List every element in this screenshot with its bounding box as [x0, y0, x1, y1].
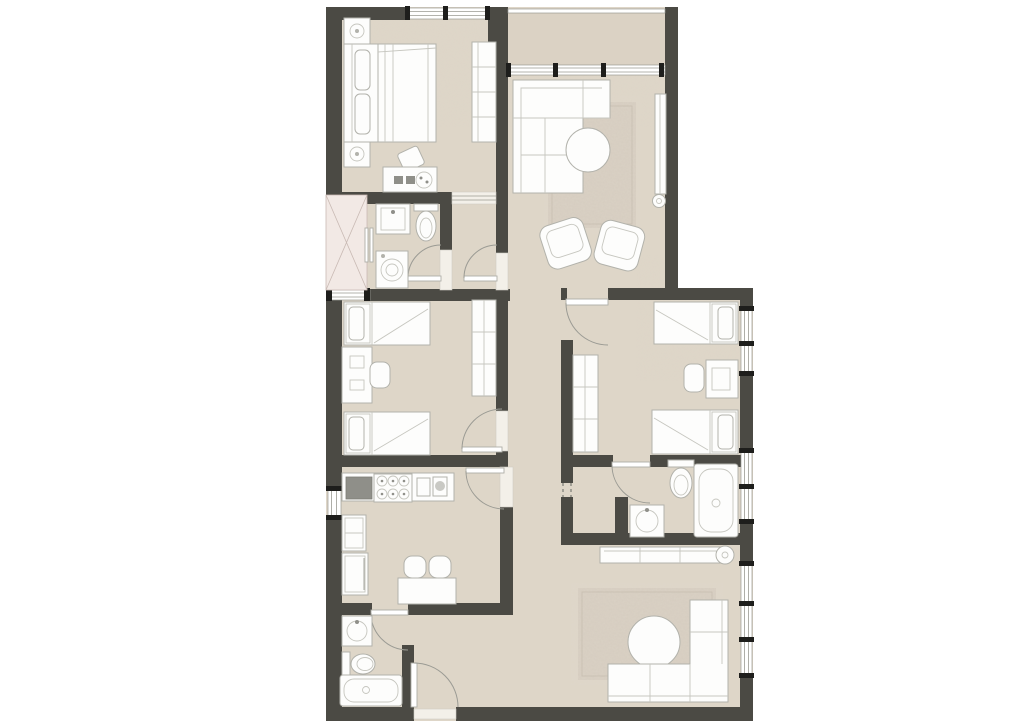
bath1-door-gap	[440, 250, 452, 290]
floor-plan-page	[0, 0, 1024, 724]
gas-hob	[374, 474, 412, 502]
fridge	[342, 553, 368, 595]
washbasin-3	[342, 616, 372, 646]
double-bed	[344, 44, 436, 142]
bed3-bottom	[652, 410, 738, 454]
wall-step	[665, 288, 753, 300]
tall-unit	[342, 515, 366, 551]
dining-chair-1	[404, 556, 426, 578]
kids-bed-top	[344, 302, 430, 345]
wall-left-middle	[326, 290, 342, 487]
window-terrace-glazing	[508, 65, 665, 75]
bed3-desk	[706, 360, 738, 398]
wall-right-lower-b	[740, 375, 753, 450]
window-shower-niche	[328, 290, 370, 300]
cutting-board	[417, 478, 430, 496]
master-door-opening	[452, 192, 496, 204]
kids-desk-chair	[370, 362, 390, 388]
floor-plan-canvas	[0, 0, 1024, 724]
shower-niche	[326, 195, 367, 290]
toilet-3	[342, 652, 375, 676]
wall-bed3-bottom-a	[561, 455, 613, 467]
lounge-coffee-table	[628, 616, 680, 668]
wall-kitchen-bottom-a	[342, 603, 372, 615]
wall-right-upper	[665, 7, 678, 300]
wall-bottom-right	[456, 707, 753, 721]
kids-bed-bottom	[344, 412, 430, 455]
terrace-railing	[508, 9, 665, 13]
kids-desk	[342, 347, 372, 403]
kitchen-sink	[346, 477, 372, 499]
washbasin-1	[376, 204, 410, 234]
dresser	[383, 167, 437, 192]
tv-unit	[655, 94, 666, 194]
sideboard	[600, 546, 734, 564]
small-appliance	[433, 477, 447, 496]
wall-kidsroom-top	[370, 289, 510, 301]
vestibule-door-gap	[496, 253, 508, 290]
bathtub-3	[340, 675, 402, 706]
wall-left-upper	[326, 7, 342, 203]
wall-right-lower-d	[740, 677, 753, 721]
wall-kitchen-top	[342, 455, 508, 467]
window-lounge-right	[741, 563, 752, 677]
bathtub-2	[694, 464, 738, 537]
dining-table	[398, 578, 456, 604]
window-kitchen-left	[328, 489, 341, 517]
master-wardrobe	[472, 42, 496, 142]
kids-wardrobe	[472, 300, 496, 396]
entry-door-opening	[414, 709, 456, 719]
wall-master-hall	[496, 70, 508, 253]
coffee-table	[566, 128, 610, 172]
wall-bed3-top	[608, 288, 665, 300]
bed3-top	[654, 302, 738, 344]
wall-bed3-top-pier	[561, 288, 567, 300]
wall-kitchen-bottom-b	[408, 603, 513, 615]
bed3-wardrobe	[573, 355, 598, 452]
wall-bottom-left	[326, 707, 414, 721]
nightstand-bottom	[344, 141, 370, 167]
dining-chair-2	[429, 556, 451, 578]
terrace-floor	[508, 13, 665, 65]
nightstand-top	[344, 18, 370, 44]
toilet-2	[668, 460, 694, 498]
wall-kitchen-right	[500, 507, 513, 610]
wall-kidsroom-right	[496, 301, 508, 411]
kids-door-gap	[496, 411, 508, 451]
bed3-desk-chair	[684, 364, 704, 392]
washbasin-2	[630, 505, 664, 537]
wall-bath2-stub	[615, 497, 628, 537]
floor-lamp	[653, 195, 666, 208]
wall-bath1-stub	[440, 192, 452, 250]
washing-machine	[376, 251, 408, 288]
